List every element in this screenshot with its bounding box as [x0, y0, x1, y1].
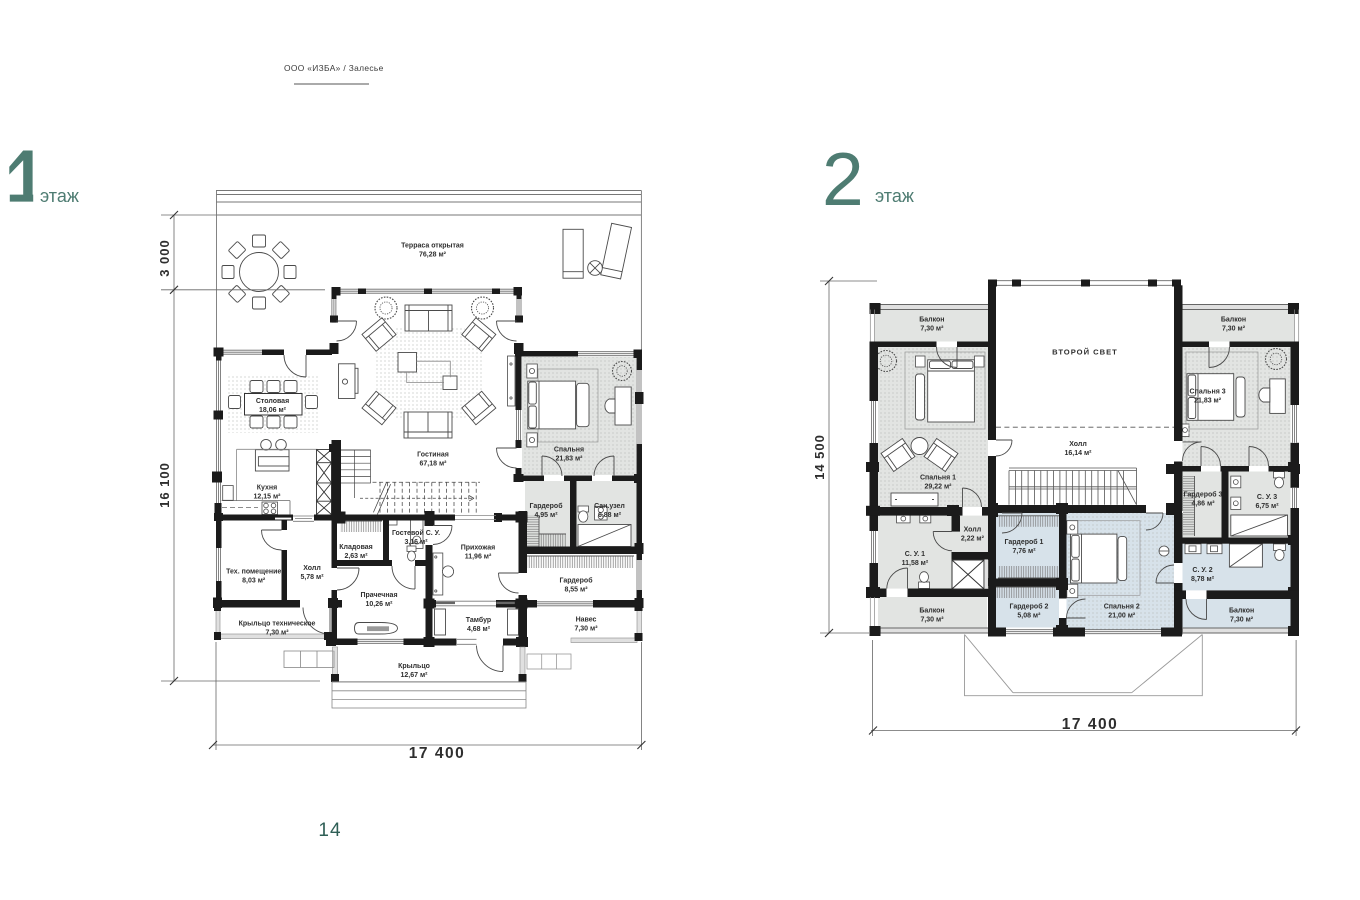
svg-text:Гардероб: Гардероб — [559, 577, 593, 585]
svg-text:С. У. 1: С. У. 1 — [905, 551, 925, 558]
svg-text:Гардероб 3: Гардероб 3 — [1184, 491, 1223, 499]
svg-text:Сан.узел: Сан.узел — [594, 503, 625, 510]
svg-text:7,30 м²: 7,30 м² — [1230, 617, 1254, 624]
svg-text:21,83 м²: 21,83 м² — [556, 456, 584, 463]
svg-text:7,30 м²: 7,30 м² — [1222, 326, 1246, 333]
svg-text:17 400: 17 400 — [409, 745, 465, 762]
svg-text:С. У. 3: С. У. 3 — [1257, 494, 1277, 501]
svg-text:Холл: Холл — [303, 565, 321, 572]
svg-text:7,76 м²: 7,76 м² — [1012, 548, 1036, 555]
svg-text:5,78 м²: 5,78 м² — [300, 574, 324, 581]
svg-text:12,67 м²: 12,67 м² — [401, 672, 429, 679]
svg-text:14: 14 — [318, 820, 341, 841]
svg-text:этаж: этаж — [40, 186, 79, 206]
svg-text:Балкон: Балкон — [1229, 608, 1254, 615]
svg-text:7,30 м²: 7,30 м² — [920, 617, 944, 624]
svg-text:Кухня: Кухня — [257, 485, 277, 492]
svg-text:21,83 м²: 21,83 м² — [1194, 398, 1222, 405]
svg-text:8,55 м²: 8,55 м² — [564, 587, 588, 594]
svg-text:12,15 м²: 12,15 м² — [254, 494, 282, 501]
svg-text:Спальня: Спальня — [554, 447, 584, 454]
svg-text:Прихожая: Прихожая — [461, 545, 496, 552]
svg-text:Гардероб 1: Гардероб 1 — [1005, 538, 1044, 546]
svg-text:Балкон: Балкон — [919, 608, 944, 615]
svg-text:Прачечная: Прачечная — [360, 592, 397, 599]
svg-text:17 400: 17 400 — [1062, 716, 1118, 733]
svg-text:ВТОРОЙ СВЕТ: ВТОРОЙ СВЕТ — [1052, 348, 1118, 357]
svg-text:4,86 м²: 4,86 м² — [1191, 501, 1215, 508]
svg-text:Терраса открытая: Терраса открытая — [401, 243, 464, 250]
svg-text:76,28 м²: 76,28 м² — [419, 252, 447, 259]
svg-text:ООО «ИЗБА» / Залесье: ООО «ИЗБА» / Залесье — [284, 63, 384, 73]
svg-text:3 000: 3 000 — [157, 239, 172, 277]
svg-text:11,96 м²: 11,96 м² — [465, 554, 492, 561]
svg-text:8,03 м²: 8,03 м² — [242, 578, 266, 585]
svg-text:Гостиная: Гостиная — [417, 452, 449, 459]
svg-text:Балкон: Балкон — [1221, 317, 1246, 324]
svg-text:5,08 м²: 5,08 м² — [1017, 613, 1041, 620]
svg-text:Балкон: Балкон — [919, 317, 944, 324]
svg-text:Спальня 3: Спальня 3 — [1190, 389, 1226, 396]
svg-text:С. У. 2: С. У. 2 — [1192, 567, 1212, 574]
svg-text:16,14 м²: 16,14 м² — [1065, 450, 1093, 457]
svg-text:Гардероб 2: Гардероб 2 — [1009, 603, 1048, 611]
svg-text:18,06 м²: 18,06 м² — [259, 407, 287, 414]
svg-text:Холл: Холл — [1069, 441, 1087, 448]
svg-text:14 500: 14 500 — [812, 434, 827, 480]
svg-text:3,16 м²: 3,16 м² — [404, 539, 428, 546]
svg-text:Холл: Холл — [964, 527, 982, 534]
svg-text:Столовая: Столовая — [256, 398, 289, 405]
svg-text:Гардероб: Гардероб — [529, 502, 563, 510]
svg-text:6,88 м²: 6,88 м² — [598, 512, 622, 519]
svg-text:8,78 м²: 8,78 м² — [1191, 576, 1215, 583]
svg-text:7,30 м²: 7,30 м² — [574, 626, 598, 633]
svg-text:16 100: 16 100 — [157, 462, 172, 508]
svg-text:Крыльцо техническое: Крыльцо техническое — [239, 621, 316, 628]
svg-text:Гостевой С. У.: Гостевой С. У. — [392, 529, 440, 537]
svg-text:21,00 м²: 21,00 м² — [1108, 613, 1136, 620]
svg-text:7,30 м²: 7,30 м² — [265, 630, 289, 637]
svg-text:67,18 м²: 67,18 м² — [420, 461, 448, 468]
svg-text:2: 2 — [822, 137, 864, 221]
svg-text:2,22 м²: 2,22 м² — [961, 536, 985, 543]
svg-text:Тамбур: Тамбур — [466, 616, 491, 624]
svg-text:7,30 м²: 7,30 м² — [920, 326, 944, 333]
svg-text:6,75 м²: 6,75 м² — [1255, 503, 1279, 510]
svg-text:Навес: Навес — [576, 617, 597, 624]
svg-text:2,63 м²: 2,63 м² — [344, 553, 368, 560]
svg-text:Тех. помещение: Тех. помещение — [226, 569, 281, 576]
svg-text:Спальня 1: Спальня 1 — [920, 475, 956, 482]
svg-text:Спальня 2: Спальня 2 — [1104, 604, 1140, 611]
svg-text:29,22 м²: 29,22 м² — [925, 484, 953, 491]
svg-text:4,95 м²: 4,95 м² — [534, 512, 558, 519]
svg-text:4,68 м²: 4,68 м² — [467, 626, 491, 633]
svg-text:11,58 м²: 11,58 м² — [902, 560, 929, 567]
svg-text:Крыльцо: Крыльцо — [398, 663, 430, 670]
svg-text:этаж: этаж — [875, 186, 914, 206]
svg-text:Кладовая: Кладовая — [339, 544, 373, 551]
svg-text:10,26 м²: 10,26 м² — [366, 601, 394, 608]
